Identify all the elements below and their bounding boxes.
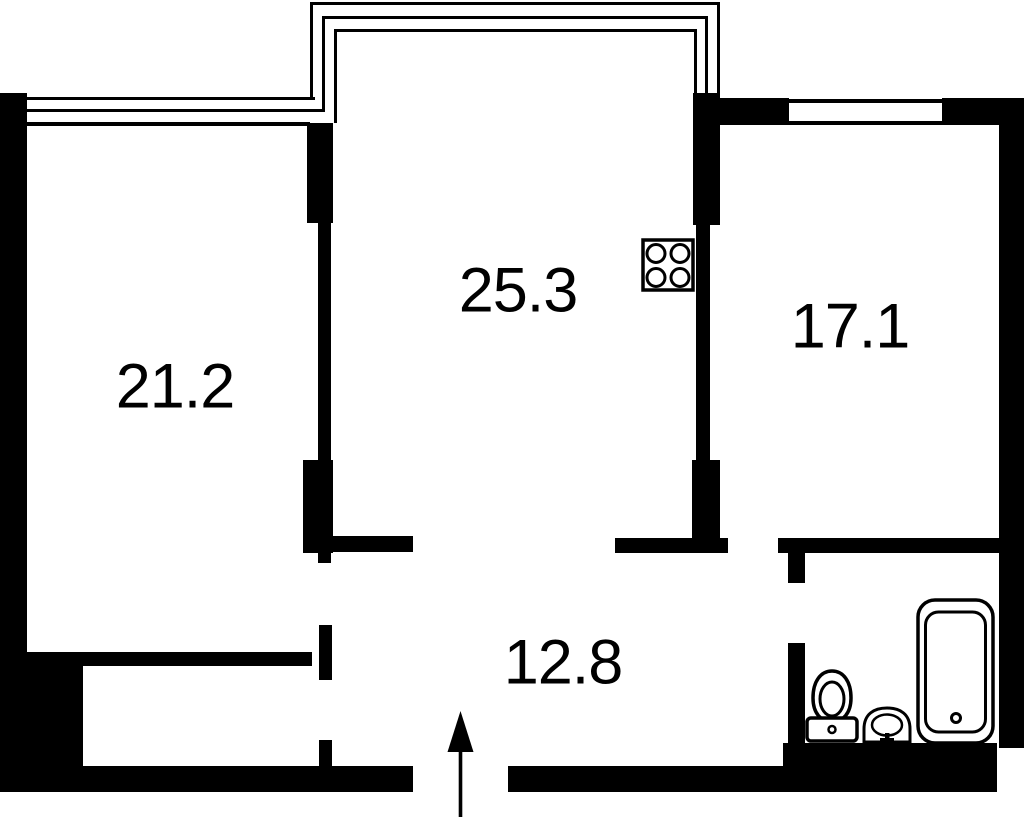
wall-segment [999, 98, 1024, 748]
wall-segment [720, 98, 789, 125]
room-area-label: 12.8 [504, 632, 623, 695]
toilet-icon [805, 666, 861, 744]
bathtub-icon [916, 598, 995, 745]
wall-segment [303, 460, 333, 553]
wall-segment [25, 652, 312, 666]
wall-segment [615, 538, 728, 553]
wall-segment [307, 123, 333, 223]
wall-segment [788, 643, 805, 792]
wall-segment [778, 538, 1024, 553]
wall-segment [693, 93, 720, 225]
window-line [27, 122, 310, 126]
room-area-label: 25.3 [459, 260, 578, 323]
wall-segment [942, 98, 1024, 125]
balcony-line [322, 16, 325, 112]
wall-segment [692, 460, 720, 538]
balcony-line [334, 29, 697, 32]
balcony-line [322, 16, 708, 19]
wall-segment [319, 740, 332, 766]
balcony-line [694, 29, 697, 95]
wall-segment [333, 536, 413, 552]
wall-segment [783, 743, 997, 792]
wall-segment [0, 766, 413, 792]
sink-icon [861, 704, 915, 746]
balcony-line [705, 16, 708, 95]
balcony-line [27, 109, 325, 112]
balcony-line [310, 2, 720, 5]
window-line [789, 121, 942, 125]
room-area-label: 21.2 [116, 356, 235, 419]
wall-segment [319, 625, 332, 680]
wall-segment [788, 553, 805, 583]
entrance-arrow-icon [444, 710, 477, 817]
balcony-line [27, 97, 315, 100]
balcony-line [334, 29, 337, 123]
wall-segment [696, 225, 710, 465]
floor-plan: 21.2 25.3 17.1 12.8 [0, 0, 1024, 817]
balcony-line [310, 2, 313, 100]
room-area-label: 17.1 [791, 296, 910, 359]
balcony-line [717, 2, 720, 95]
window-line [789, 99, 942, 103]
stove-icon [641, 238, 695, 292]
